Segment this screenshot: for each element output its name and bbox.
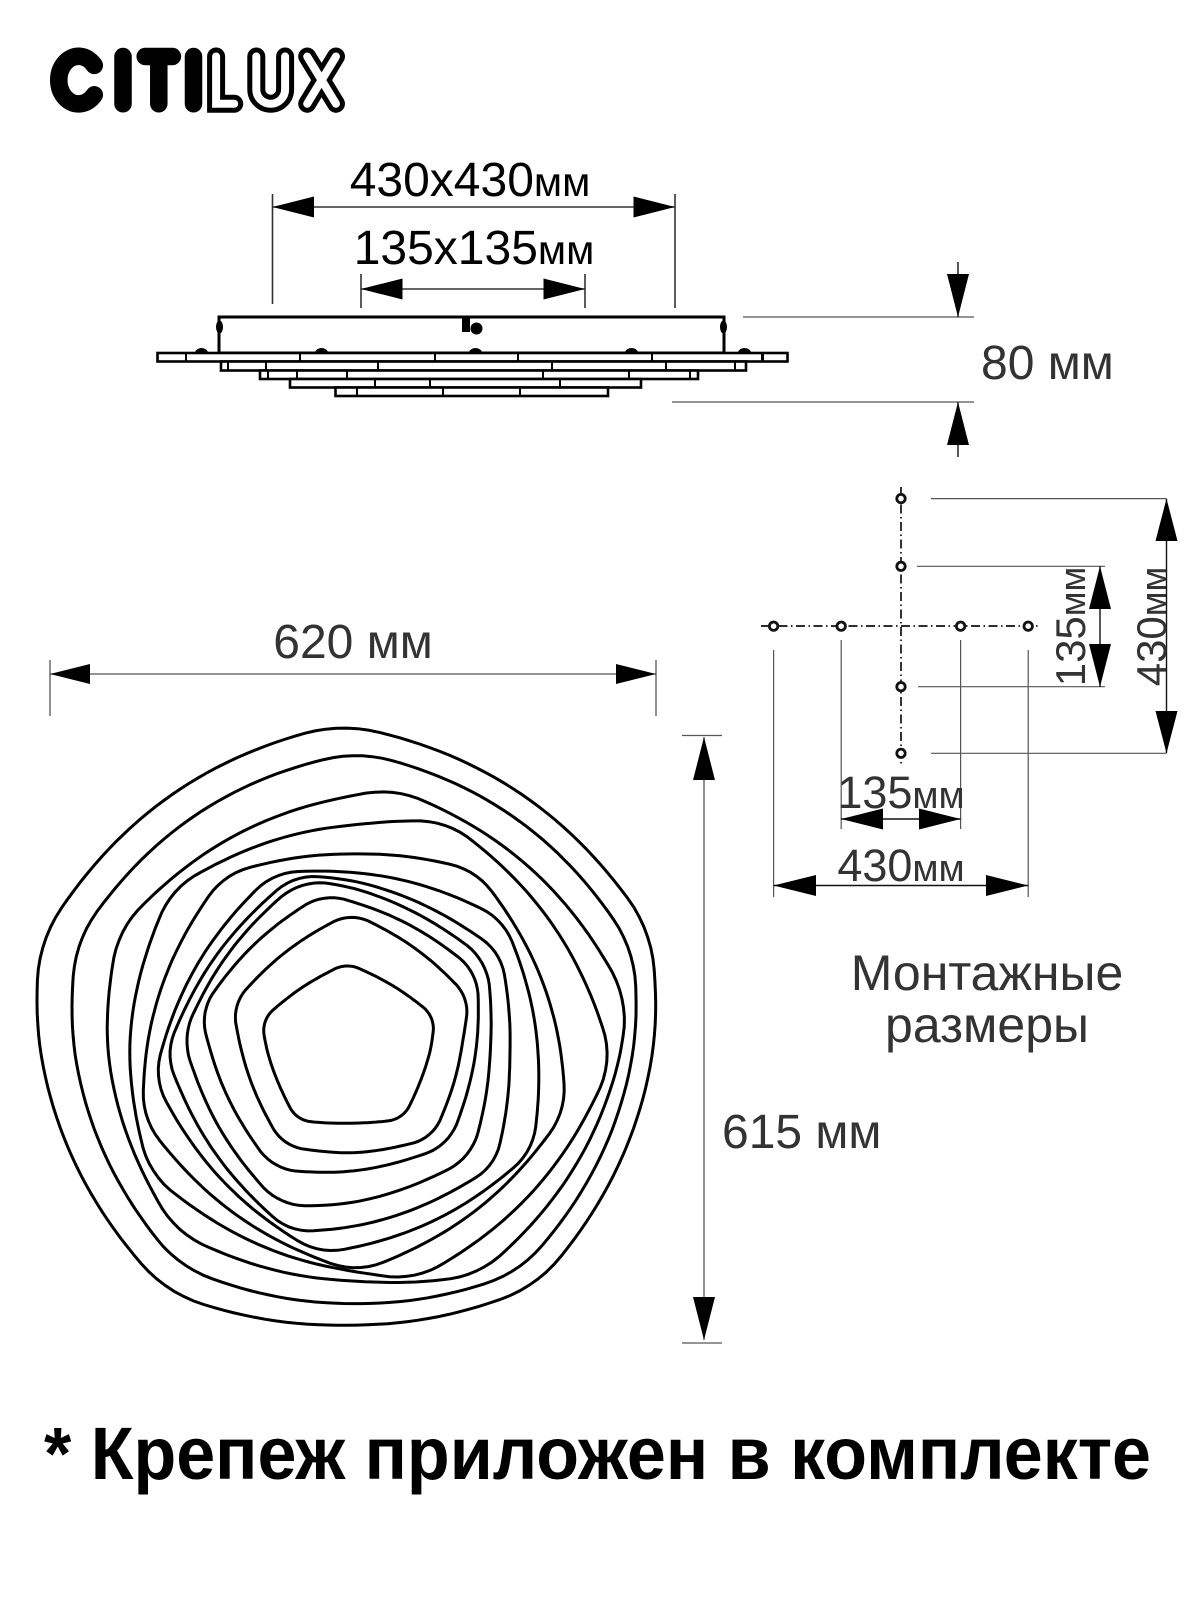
svg-text:Монтажные: Монтажные [851, 945, 1124, 1001]
svg-text:615 мм: 615 мм [722, 1106, 881, 1159]
svg-text:620 мм: 620 мм [273, 616, 432, 669]
svg-text:430мм: 430мм [837, 840, 964, 891]
svg-text:430мм: 430мм [1128, 567, 1175, 687]
svg-text:* Крепеж приложен в комплекте: * Крепеж приложен в комплекте [44, 1412, 1151, 1495]
svg-text:размеры: размеры [885, 997, 1089, 1053]
svg-text:135мм: 135мм [1047, 567, 1094, 687]
svg-text:430x430мм: 430x430мм [350, 154, 591, 207]
svg-text:135x135мм: 135x135мм [354, 222, 595, 275]
svg-text:80 мм: 80 мм [981, 337, 1114, 390]
svg-text:135мм: 135мм [837, 767, 964, 818]
